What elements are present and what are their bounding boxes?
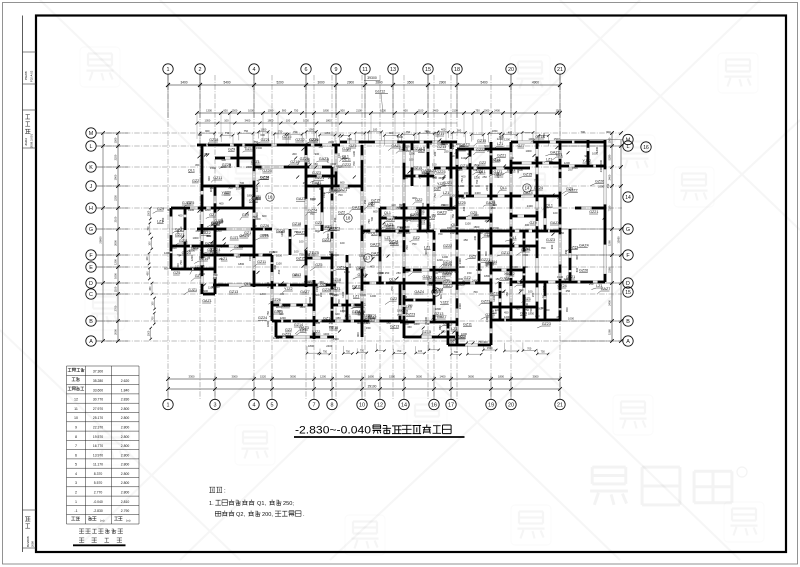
svg-text:600: 600 <box>262 214 267 218</box>
svg-text:GZ5: GZ5 <box>315 263 322 267</box>
svg-text:2400: 2400 <box>472 279 478 283</box>
svg-text:750: 750 <box>451 214 455 219</box>
svg-text:QL1: QL1 <box>371 232 378 236</box>
svg-text:GAZ3: GAZ3 <box>296 197 306 201</box>
svg-text:GZ9: GZ9 <box>228 148 235 152</box>
svg-text:400: 400 <box>441 128 446 132</box>
svg-text:1500: 1500 <box>389 375 395 379</box>
svg-text:600: 600 <box>316 321 321 325</box>
svg-text:20800: 20800 <box>99 236 103 244</box>
svg-text:700: 700 <box>252 224 257 228</box>
svg-text:2.800: 2.800 <box>121 416 130 420</box>
svg-text:19.570: 19.570 <box>93 435 103 439</box>
svg-text:GZ26: GZ26 <box>322 288 331 292</box>
svg-text:700: 700 <box>405 245 409 250</box>
svg-text:GZ2: GZ2 <box>192 179 199 183</box>
svg-text:1500: 1500 <box>148 330 151 336</box>
svg-text:1050: 1050 <box>261 128 267 132</box>
svg-text:GZ9: GZ9 <box>530 221 537 225</box>
svg-text:GZ23: GZ23 <box>281 304 290 308</box>
svg-text:15060: 15060 <box>617 236 621 244</box>
svg-text:450: 450 <box>556 315 561 319</box>
svg-text:2400: 2400 <box>475 191 481 195</box>
svg-text:GZ9: GZ9 <box>523 245 530 249</box>
svg-text:1800: 1800 <box>458 283 464 287</box>
svg-text:400: 400 <box>412 196 417 200</box>
svg-text:GZ13: GZ13 <box>490 292 499 296</box>
svg-text:750: 750 <box>294 109 299 113</box>
svg-text:GZ9: GZ9 <box>157 207 164 211</box>
svg-text:2400: 2400 <box>564 277 570 281</box>
svg-text:700: 700 <box>438 232 443 236</box>
svg-text:400: 400 <box>424 250 428 255</box>
svg-text:1100: 1100 <box>418 109 424 113</box>
svg-text:3: 3 <box>214 403 217 409</box>
svg-text:200: 200 <box>473 235 477 240</box>
svg-text:1200: 1200 <box>188 208 194 212</box>
svg-text:600: 600 <box>241 186 246 190</box>
svg-text:100: 100 <box>534 158 539 162</box>
svg-text:GZ21: GZ21 <box>589 210 598 214</box>
svg-text:GAZ7: GAZ7 <box>437 315 447 319</box>
svg-text:1500: 1500 <box>493 226 499 230</box>
svg-text:GZ25: GZ25 <box>262 169 271 173</box>
svg-text:GZ18: GZ18 <box>332 278 341 282</box>
svg-text:1200: 1200 <box>492 295 496 301</box>
svg-text:200: 200 <box>474 213 479 217</box>
svg-text:2400: 2400 <box>485 316 489 322</box>
svg-text:1520: 1520 <box>260 375 266 379</box>
svg-text:GAZ2: GAZ2 <box>352 205 362 209</box>
svg-text:GJZ3: GJZ3 <box>353 304 362 308</box>
svg-text:33.600: 33.600 <box>93 388 103 392</box>
svg-text:200: 200 <box>433 151 437 156</box>
svg-text:2008.3.001: 2008.3.001 <box>30 134 34 148</box>
svg-text:1800: 1800 <box>299 305 305 309</box>
svg-text:1500: 1500 <box>256 146 262 150</box>
svg-text:100: 100 <box>340 241 345 245</box>
svg-text:600: 600 <box>262 254 267 258</box>
svg-text:GZ11: GZ11 <box>257 260 266 264</box>
svg-text:900: 900 <box>438 270 443 274</box>
svg-text:1100: 1100 <box>208 286 214 290</box>
svg-text:2400: 2400 <box>494 109 500 113</box>
svg-text:18: 18 <box>346 216 351 221</box>
svg-text:GZ21: GZ21 <box>497 154 506 158</box>
svg-text:900: 900 <box>315 152 320 156</box>
svg-text:900: 900 <box>307 280 312 284</box>
svg-text:750: 750 <box>278 130 283 134</box>
svg-text:17: 17 <box>366 256 371 261</box>
svg-text:E: E <box>89 265 93 271</box>
svg-text:100: 100 <box>553 211 558 215</box>
svg-text:YJZ2: YJZ2 <box>569 188 578 192</box>
svg-text:750: 750 <box>405 309 409 314</box>
svg-text:B: B <box>89 319 93 325</box>
svg-text:450: 450 <box>575 255 579 260</box>
svg-text:J: J <box>90 184 93 190</box>
svg-text:GZ11: GZ11 <box>463 322 472 326</box>
svg-text:900: 900 <box>484 251 488 256</box>
svg-text:700: 700 <box>370 217 374 222</box>
svg-text:100: 100 <box>236 255 241 259</box>
svg-text:GZ26: GZ26 <box>595 180 604 184</box>
svg-text:16.770: 16.770 <box>93 444 103 448</box>
svg-text:700: 700 <box>425 322 430 326</box>
svg-text:600: 600 <box>207 234 212 238</box>
svg-text:700: 700 <box>177 253 182 257</box>
svg-text:1500: 1500 <box>315 285 319 291</box>
svg-text:100: 100 <box>286 119 291 123</box>
svg-text:YJZ2: YJZ2 <box>437 182 446 186</box>
svg-text:600: 600 <box>505 277 510 281</box>
svg-text:1500: 1500 <box>473 163 479 167</box>
svg-text:3300: 3300 <box>189 375 195 379</box>
svg-text:700: 700 <box>397 350 402 353</box>
svg-text:3400: 3400 <box>344 375 350 379</box>
svg-text:GZ2: GZ2 <box>479 161 486 165</box>
svg-text:5400: 5400 <box>223 80 230 84</box>
svg-text:GZ1: GZ1 <box>524 297 531 301</box>
svg-text:250: 250 <box>482 175 487 179</box>
svg-text:1000: 1000 <box>330 162 336 166</box>
svg-text:K: K <box>89 165 93 171</box>
svg-text:700: 700 <box>581 130 586 134</box>
svg-text:GZ15: GZ15 <box>413 268 422 272</box>
svg-text:1200: 1200 <box>320 375 326 379</box>
svg-text:GZ23: GZ23 <box>481 300 490 304</box>
svg-text:600: 600 <box>223 109 228 113</box>
svg-text:QL1: QL1 <box>451 223 458 227</box>
svg-text:200: 200 <box>316 182 320 187</box>
svg-text:GZ2: GZ2 <box>285 328 292 332</box>
svg-text:2700: 2700 <box>114 305 118 311</box>
svg-text:GZ13: GZ13 <box>501 251 510 255</box>
svg-text:GZ23: GZ23 <box>569 245 578 249</box>
svg-text:600: 600 <box>273 264 277 269</box>
svg-text:29100: 29100 <box>368 384 377 388</box>
svg-text:700: 700 <box>473 168 478 172</box>
svg-text:2250: 2250 <box>114 154 118 160</box>
svg-text:12: 12 <box>377 403 383 409</box>
svg-text:GZ9: GZ9 <box>520 312 527 316</box>
svg-text:700: 700 <box>310 212 315 216</box>
svg-text:700: 700 <box>215 285 220 289</box>
svg-text:1000: 1000 <box>461 332 467 336</box>
svg-text:700: 700 <box>454 351 459 354</box>
svg-text:9: 9 <box>75 426 77 430</box>
svg-text:900: 900 <box>319 187 324 191</box>
svg-text:1200: 1200 <box>504 137 510 141</box>
svg-text:150: 150 <box>560 231 565 235</box>
svg-text:700: 700 <box>337 299 341 304</box>
svg-text:LZ1: LZ1 <box>497 142 503 146</box>
svg-text:13.970: 13.970 <box>93 453 103 457</box>
svg-text:900: 900 <box>356 332 360 337</box>
svg-text:400: 400 <box>270 316 274 321</box>
svg-text:900: 900 <box>294 273 299 277</box>
svg-text:GZ24: GZ24 <box>258 316 267 320</box>
svg-text:900: 900 <box>205 129 210 133</box>
svg-text:250: 250 <box>408 303 413 307</box>
svg-text:1000: 1000 <box>542 285 546 291</box>
svg-text:750: 750 <box>475 109 480 113</box>
svg-text:150: 150 <box>409 214 413 219</box>
svg-text:150: 150 <box>258 167 263 171</box>
svg-text:1200: 1200 <box>280 316 286 320</box>
svg-text:450: 450 <box>606 183 610 188</box>
svg-text:2400: 2400 <box>504 272 510 276</box>
svg-text:2400: 2400 <box>496 172 500 178</box>
svg-text:900: 900 <box>204 289 209 293</box>
svg-text:1000: 1000 <box>484 109 490 113</box>
svg-text:GZ7: GZ7 <box>518 144 525 148</box>
svg-text:M: M <box>89 131 94 137</box>
svg-text:600: 600 <box>538 307 543 311</box>
svg-text:200: 200 <box>557 196 562 200</box>
svg-text:21: 21 <box>557 403 563 409</box>
svg-text:1: 1 <box>167 67 170 73</box>
svg-text:400: 400 <box>219 202 224 206</box>
svg-text:750: 750 <box>418 174 422 179</box>
svg-text:11: 11 <box>74 407 78 411</box>
svg-text:150: 150 <box>366 326 371 330</box>
svg-text:1200: 1200 <box>260 292 266 296</box>
svg-text:2.800: 2.800 <box>121 491 130 495</box>
svg-text:GJZ3: GJZ3 <box>331 227 340 231</box>
svg-text:14: 14 <box>625 195 631 201</box>
svg-text:400: 400 <box>462 206 466 211</box>
svg-text:150: 150 <box>329 292 334 296</box>
svg-text:2160: 2160 <box>608 267 612 273</box>
svg-text:1800: 1800 <box>473 225 479 229</box>
svg-text:LZ1: LZ1 <box>556 153 562 157</box>
svg-text:700: 700 <box>219 219 224 223</box>
svg-text:GZ23: GZ23 <box>282 333 291 337</box>
svg-text:750: 750 <box>366 231 371 235</box>
svg-text:100: 100 <box>299 239 304 243</box>
svg-text:3400: 3400 <box>180 80 187 84</box>
svg-text:100: 100 <box>152 301 155 306</box>
svg-text:1200: 1200 <box>205 208 211 212</box>
svg-text:2400: 2400 <box>199 272 205 276</box>
svg-text:GZ11: GZ11 <box>179 239 188 243</box>
svg-text:1050: 1050 <box>303 119 309 123</box>
svg-text:6: 6 <box>305 67 308 73</box>
svg-text:200: 200 <box>359 266 364 270</box>
svg-text:22.370: 22.370 <box>93 426 103 430</box>
svg-text:2400: 2400 <box>246 165 252 169</box>
svg-text:3000: 3000 <box>232 375 238 379</box>
svg-text:900: 900 <box>457 128 462 132</box>
svg-text:1100: 1100 <box>344 270 350 274</box>
svg-text:27.970: 27.970 <box>93 407 103 411</box>
svg-text:700: 700 <box>352 161 356 166</box>
svg-text:19: 19 <box>488 403 494 409</box>
svg-text:150: 150 <box>219 257 224 261</box>
svg-text:2.790: 2.790 <box>121 509 130 513</box>
svg-text:700: 700 <box>406 149 411 153</box>
svg-text:100: 100 <box>348 263 352 268</box>
svg-text:700: 700 <box>401 141 406 145</box>
svg-text:GZ23: GZ23 <box>542 322 551 326</box>
svg-text:900: 900 <box>282 109 287 113</box>
svg-text:100: 100 <box>464 191 469 195</box>
svg-text:400: 400 <box>406 231 411 235</box>
svg-text:GZ2: GZ2 <box>315 221 322 225</box>
svg-text:1000: 1000 <box>495 308 501 312</box>
svg-text:5.570: 5.570 <box>94 481 103 485</box>
svg-text:14: 14 <box>525 186 530 191</box>
svg-text:-1: -1 <box>74 509 77 513</box>
svg-text:750: 750 <box>397 313 402 317</box>
svg-text:700: 700 <box>147 226 150 231</box>
svg-text:900: 900 <box>451 144 455 149</box>
svg-text:GZ13: GZ13 <box>229 290 238 294</box>
svg-text:D: D <box>89 281 93 287</box>
svg-text:GZ14: GZ14 <box>323 317 332 321</box>
svg-text:4: 4 <box>253 403 256 409</box>
svg-text:GZ14: GZ14 <box>294 323 303 327</box>
svg-text:100: 100 <box>146 256 149 261</box>
svg-text:1500: 1500 <box>333 284 337 290</box>
svg-text:QL1: QL1 <box>384 211 391 215</box>
svg-text:QL1: QL1 <box>500 186 507 190</box>
svg-text:1100: 1100 <box>352 151 356 157</box>
svg-text:GZ22: GZ22 <box>476 148 485 152</box>
svg-text:1000: 1000 <box>526 149 532 153</box>
svg-text:2400: 2400 <box>599 166 603 172</box>
svg-text:150: 150 <box>179 243 184 247</box>
svg-text:1500: 1500 <box>322 191 326 197</box>
svg-text:150: 150 <box>422 146 426 151</box>
svg-text:600: 600 <box>260 133 265 137</box>
svg-text:100: 100 <box>149 241 152 246</box>
svg-text:1000: 1000 <box>427 283 433 287</box>
svg-text:GZ9: GZ9 <box>242 213 249 217</box>
svg-text:35.280: 35.280 <box>93 379 103 383</box>
svg-text:QL1: QL1 <box>546 204 553 208</box>
svg-text:Q1,: Q1, <box>257 501 266 507</box>
svg-text:4: 4 <box>253 67 256 73</box>
svg-text:19: 19 <box>434 290 439 295</box>
svg-text:20: 20 <box>508 67 514 73</box>
svg-text:GZ2: GZ2 <box>464 276 471 280</box>
svg-text:GZ11: GZ11 <box>507 168 516 172</box>
svg-text:GZ18: GZ18 <box>292 222 301 226</box>
svg-text:5400: 5400 <box>480 80 487 84</box>
svg-text:400: 400 <box>279 312 284 316</box>
svg-text:GZ15: GZ15 <box>477 139 486 143</box>
svg-text:900: 900 <box>221 158 226 162</box>
svg-text:2400: 2400 <box>485 184 489 190</box>
svg-text:1000: 1000 <box>248 109 254 113</box>
svg-text:600: 600 <box>373 210 378 214</box>
svg-text:1: 1 <box>167 403 170 409</box>
svg-text:1000: 1000 <box>360 293 366 297</box>
svg-text:1000: 1000 <box>323 332 329 336</box>
svg-text:1800: 1800 <box>329 184 335 188</box>
svg-text:5: 5 <box>271 403 274 409</box>
svg-text:10: 10 <box>359 403 365 409</box>
svg-text:18: 18 <box>454 67 460 73</box>
svg-text:-2.830~-0.040: -2.830~-0.040 <box>295 425 371 437</box>
svg-text:900: 900 <box>389 131 394 135</box>
svg-text:1100: 1100 <box>450 194 456 198</box>
svg-text:GAZ4: GAZ4 <box>442 272 452 276</box>
svg-text:750: 750 <box>244 129 249 133</box>
svg-text:100: 100 <box>409 157 414 161</box>
svg-text:7: 7 <box>75 444 77 448</box>
svg-text:1800: 1800 <box>326 119 332 123</box>
svg-text:GAZ1: GAZ1 <box>443 321 453 325</box>
svg-text:1000: 1000 <box>380 109 386 113</box>
svg-text:450: 450 <box>277 269 281 274</box>
svg-text:100: 100 <box>418 350 423 353</box>
svg-text:750: 750 <box>425 229 429 234</box>
svg-text:1800: 1800 <box>572 166 578 170</box>
svg-text:750: 750 <box>525 308 530 312</box>
svg-text:1800: 1800 <box>199 255 205 259</box>
svg-text:2400: 2400 <box>608 300 612 306</box>
svg-text:150: 150 <box>228 163 232 168</box>
svg-text:900: 900 <box>458 168 463 172</box>
svg-text:1200: 1200 <box>516 167 520 173</box>
svg-text:3000: 3000 <box>317 80 324 84</box>
svg-text:450: 450 <box>431 213 436 217</box>
svg-text:GJZ1: GJZ1 <box>188 288 197 292</box>
svg-text:750: 750 <box>299 253 304 257</box>
svg-text:LZ1: LZ1 <box>443 191 449 195</box>
svg-text:GAZ3: GAZ3 <box>370 242 380 246</box>
svg-text:6: 6 <box>75 453 77 457</box>
svg-text:600: 600 <box>393 215 398 219</box>
svg-text:GZ2: GZ2 <box>338 211 345 215</box>
svg-text:750: 750 <box>541 351 546 354</box>
svg-text:GZ21: GZ21 <box>261 138 270 142</box>
svg-text:2250: 2250 <box>114 195 118 201</box>
svg-text:750: 750 <box>254 140 259 144</box>
svg-text:1100: 1100 <box>207 253 211 259</box>
svg-text:400: 400 <box>461 174 466 178</box>
svg-text:700: 700 <box>541 246 546 250</box>
svg-text:150: 150 <box>450 231 455 235</box>
svg-text:2.800: 2.800 <box>121 444 130 448</box>
svg-text:1050: 1050 <box>268 109 274 113</box>
svg-text:700: 700 <box>529 308 533 313</box>
svg-text:1500: 1500 <box>189 249 195 253</box>
svg-text:1050: 1050 <box>324 131 330 135</box>
svg-text:150: 150 <box>210 186 215 190</box>
svg-text:1.840: 1.840 <box>121 388 130 392</box>
svg-text:GZ15: GZ15 <box>296 256 305 260</box>
svg-text:LZ1: LZ1 <box>424 246 430 250</box>
svg-text:13: 13 <box>390 67 396 73</box>
svg-text:400: 400 <box>333 217 337 222</box>
svg-text:450: 450 <box>149 286 152 291</box>
svg-text:GZ5: GZ5 <box>173 271 180 275</box>
svg-text:GJZ1: GJZ1 <box>342 147 351 151</box>
svg-text:25.170: 25.170 <box>93 416 103 420</box>
svg-text:11: 11 <box>362 67 368 73</box>
svg-text:600: 600 <box>484 144 489 148</box>
svg-text:GZ15: GZ15 <box>523 172 532 176</box>
svg-text:1100: 1100 <box>276 262 282 266</box>
svg-text:700: 700 <box>240 181 245 185</box>
svg-text:GZ24: GZ24 <box>308 208 317 212</box>
svg-text:450: 450 <box>146 271 149 276</box>
svg-text:1050: 1050 <box>205 119 211 123</box>
